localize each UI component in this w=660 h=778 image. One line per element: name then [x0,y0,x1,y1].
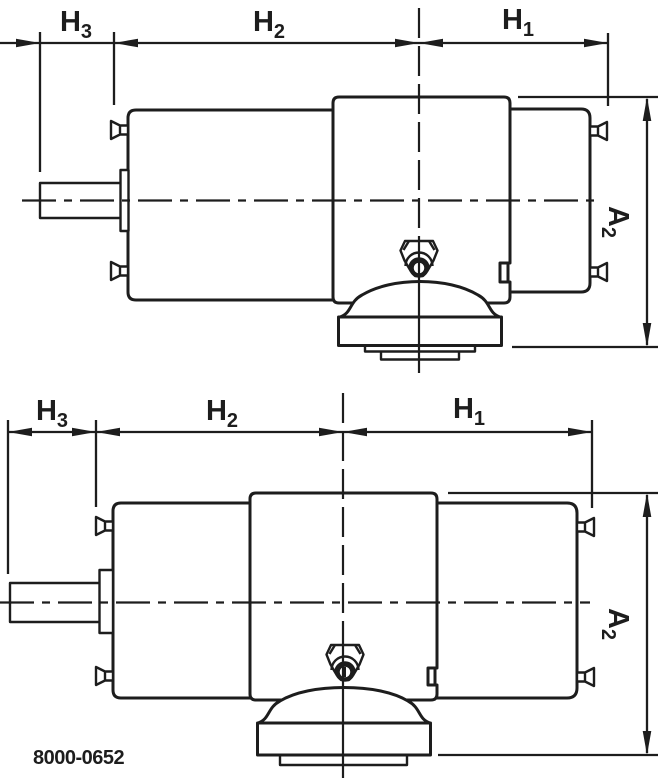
h3-label: H3 [36,395,68,432]
screw-icon [111,121,128,139]
gear-unit-outline [10,493,594,765]
a2-label: A2 [597,206,634,238]
screw-icon [590,263,607,281]
technical-drawing: H3 H2 H1 A2 [0,0,660,778]
gearbox-housing [113,503,252,698]
h1-label: H1 [502,4,534,41]
a2-label: A2 [597,608,634,640]
screw-icon [577,668,594,686]
h2-label: H2 [206,395,238,432]
screw-icon [590,122,607,140]
gear-unit-outline [40,97,607,360]
h1-label: H1 [453,393,485,430]
top-view: H3 H2 H1 A2 [0,4,658,373]
h2-label: H2 [253,6,285,43]
motor-housing [435,503,577,698]
dimensional-drawing-page: H3 H2 H1 A2 [0,0,660,778]
drawing-number: 8000-0652 [33,747,125,769]
screw-icon [111,262,128,280]
gearbox-housing [128,110,335,300]
h3-label: H3 [60,6,92,43]
screw-icon [96,667,113,685]
bottom-view: H3 H2 H1 A2 [0,393,658,778]
screw-icon [577,518,594,536]
screw-icon [96,517,113,535]
